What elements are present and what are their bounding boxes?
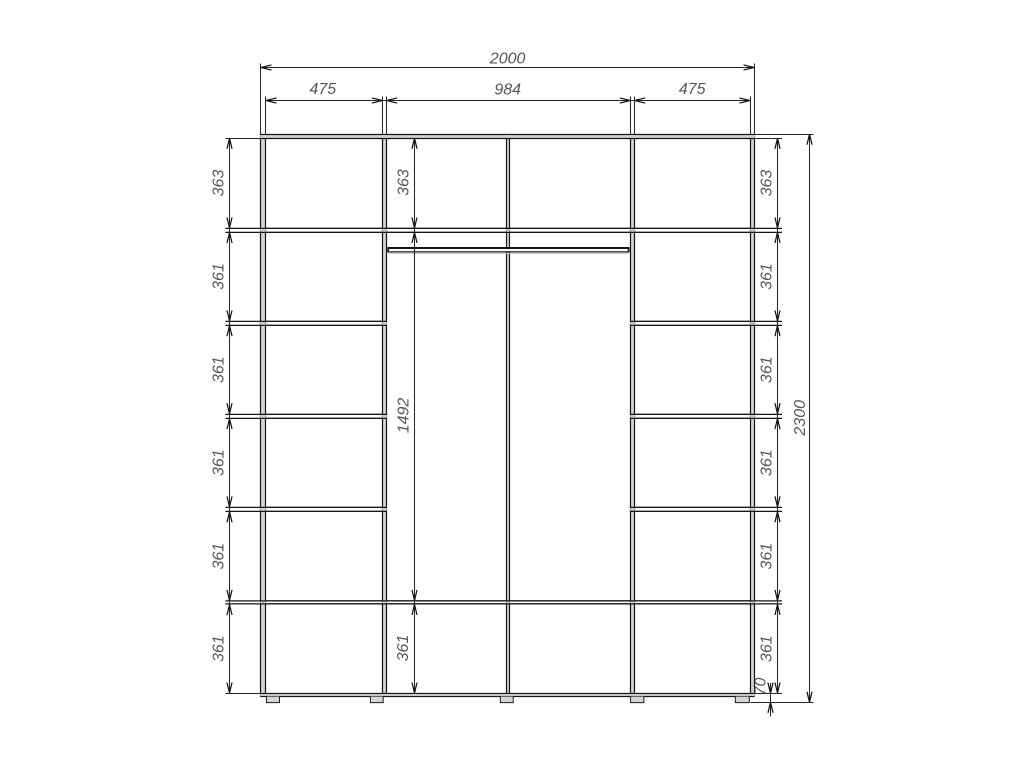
svg-text:361: 361	[210, 356, 227, 383]
svg-text:1492: 1492	[396, 398, 413, 434]
svg-text:363: 363	[759, 170, 776, 197]
svg-text:363: 363	[210, 170, 227, 197]
svg-text:361: 361	[759, 263, 776, 290]
svg-text:361: 361	[210, 635, 227, 662]
svg-text:361: 361	[395, 635, 412, 662]
svg-text:70: 70	[753, 678, 770, 696]
svg-text:361: 361	[210, 449, 227, 476]
svg-text:361: 361	[210, 263, 227, 290]
svg-text:361: 361	[210, 543, 227, 570]
svg-text:475: 475	[679, 81, 706, 98]
svg-text:2000: 2000	[489, 50, 526, 67]
svg-text:363: 363	[396, 169, 413, 196]
svg-text:361: 361	[759, 449, 776, 476]
svg-text:984: 984	[494, 82, 521, 99]
svg-text:475: 475	[309, 81, 336, 98]
svg-text:2300: 2300	[792, 400, 809, 437]
svg-text:361: 361	[759, 543, 776, 570]
svg-text:361: 361	[759, 356, 776, 383]
svg-text:361: 361	[759, 635, 776, 662]
